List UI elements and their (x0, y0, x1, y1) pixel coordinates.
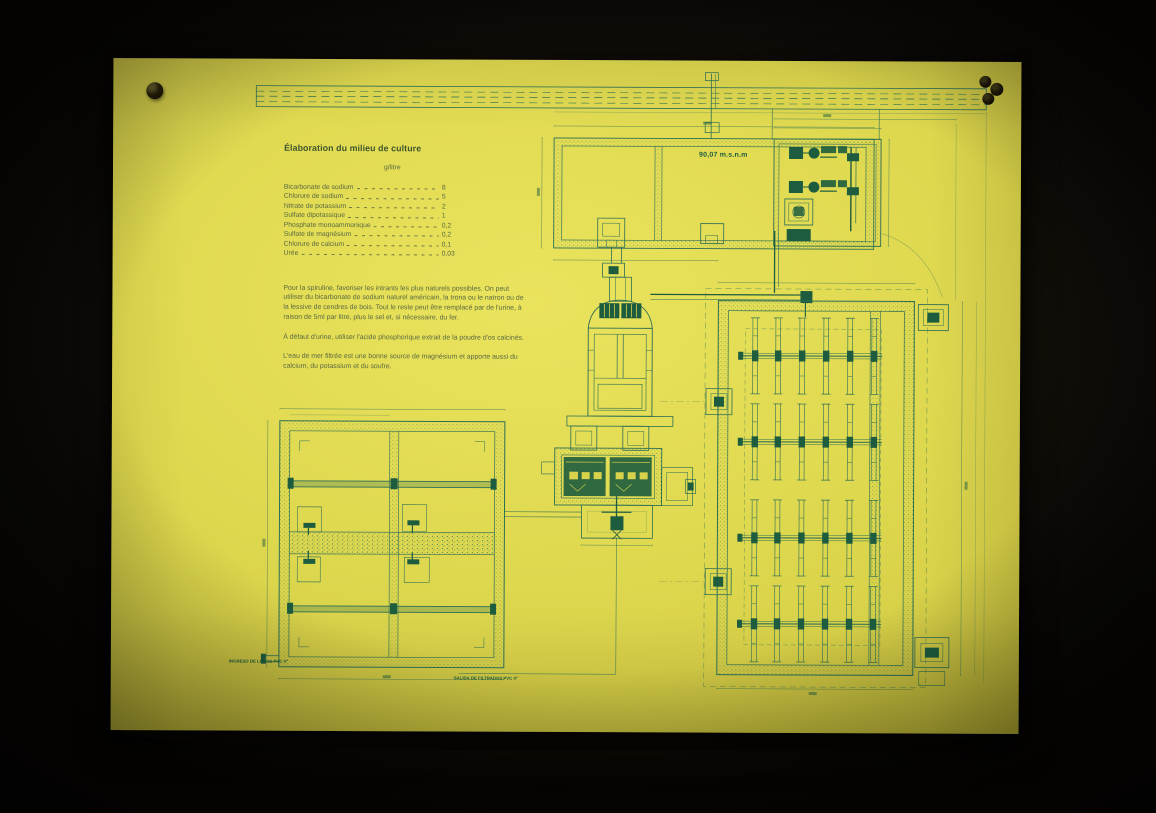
top-channel-plan (256, 71, 986, 140)
pin-dot (982, 93, 994, 105)
leader-dashes (301, 254, 438, 256)
chemical-value: 1 (442, 213, 476, 220)
leader-dashes (348, 217, 439, 218)
chemical-value: 0,2 (442, 222, 476, 229)
unit-header: g/litre (384, 164, 532, 172)
gallery-wall: 90,07 m.s.n.m (0, 0, 1156, 813)
chemical-name: Sulfate dipotassique (284, 212, 345, 219)
leader-dashes (349, 207, 439, 208)
poster-title: Élaboration du milieu de culture (284, 143, 532, 154)
chemical-table: Bicarbonate de sodium 8 Chlorure de sodi… (284, 184, 476, 260)
chemical-name: Bicarbonate de sodium (284, 184, 354, 191)
sludge-inlet-label: INGRESO DE LODOS PVC 4" (229, 659, 288, 664)
elevation-label: 90,07 m.s.n.m (699, 152, 748, 159)
sludge-tank-plan: INGRESO DE LODOS PVC 4" (229, 409, 505, 680)
leader-dashes (347, 245, 439, 246)
leader-dashes (346, 198, 439, 199)
lower-pipe (287, 603, 496, 615)
basin-gate-right-bottom (915, 638, 949, 686)
table-row: Urée 0,03 (284, 250, 476, 260)
push-pin-left (146, 82, 163, 99)
chemical-name: Phosphate monoammonique (284, 222, 371, 229)
technical-drawing: 90,07 m.s.n.m (111, 58, 1022, 734)
chemical-name: Chlorure de calcium (284, 240, 344, 247)
digester-tower-section (567, 277, 674, 450)
pump-unit-2 (789, 180, 847, 193)
pump-room-detail (773, 114, 956, 300)
upper-pipe (288, 478, 497, 490)
basin-gate-right-top (918, 305, 948, 331)
chemical-value: 5 (442, 194, 476, 201)
chemical-value: 0,2 (442, 232, 476, 239)
chemical-name: Urée (284, 250, 299, 257)
clarifier-tank-plan: 90,07 m.s.n.m (537, 121, 875, 278)
paragraph: Pour la spiruline, favoriser les intrant… (283, 283, 527, 323)
paragraph: À défaut d'urine, utiliser l'acide phosp… (283, 332, 527, 343)
leader-dashes (354, 235, 438, 236)
chemical-name: Chlorure de sodium (284, 193, 343, 200)
chemical-value: 0,03 (442, 251, 476, 258)
push-pin-right (975, 74, 1009, 108)
pump-chamber-1 (564, 457, 606, 496)
chemical-name: Sulfate de magnésium (284, 231, 352, 238)
filtrate-outlet-label: SALIDA DE FILTRADOS PVC 4" (454, 676, 518, 681)
pump-station-plan (504, 448, 695, 546)
paragraph: L'eau de mer filtrée est une bonne sourc… (283, 352, 527, 373)
pump-unit-1 (789, 146, 847, 159)
chemical-value: 8 (442, 184, 476, 191)
tower-grate (599, 303, 641, 318)
chemical-value: 2 (442, 203, 476, 210)
leader-dashes (374, 226, 439, 227)
pump-chamber-2 (610, 457, 652, 496)
filter-basin-plan (704, 111, 987, 696)
pin-dot (979, 76, 991, 88)
diffuser-manifolds (737, 318, 882, 663)
description-paragraphs: Pour la spiruline, favoriser les intrant… (283, 283, 527, 373)
culture-medium-text-block: Élaboration du milieu de culture g/litre… (283, 143, 532, 383)
blueprint-poster: 90,07 m.s.n.m (111, 58, 1022, 734)
chemical-name: Nitrate de potassium (284, 203, 346, 210)
chemical-value: 0,1 (442, 241, 476, 248)
leader-dashes (356, 188, 438, 189)
